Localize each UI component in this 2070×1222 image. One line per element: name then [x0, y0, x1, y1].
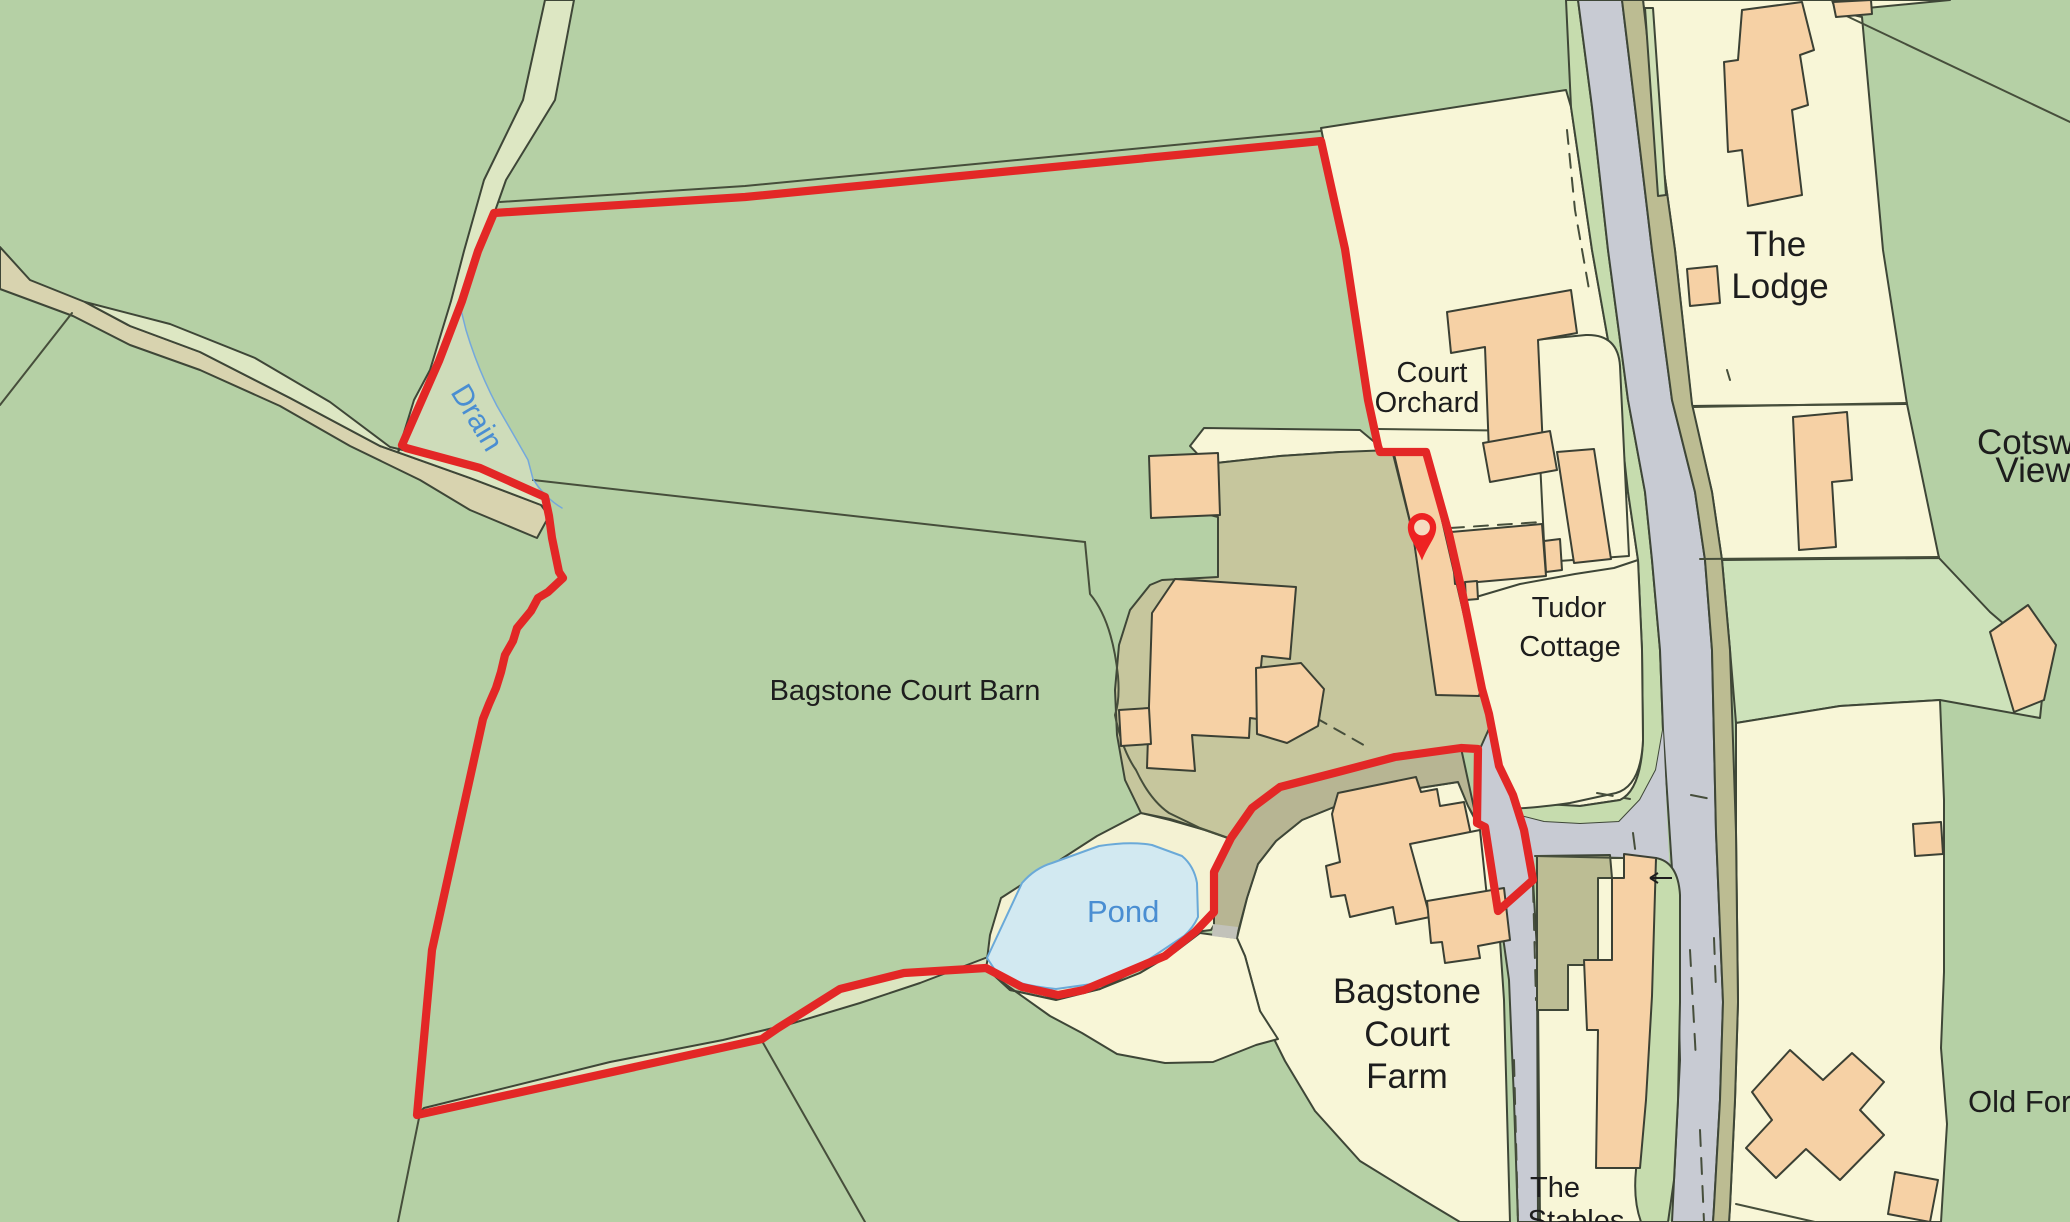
- svg-text:Farm: Farm: [1366, 1057, 1448, 1096]
- svg-text:Court: Court: [1397, 357, 1468, 389]
- svg-text:Cottage: Cottage: [1519, 631, 1621, 663]
- svg-text:Orchard: Orchard: [1375, 387, 1480, 419]
- svg-text:Tudor: Tudor: [1532, 592, 1607, 624]
- svg-text:Bagstone Court Barn: Bagstone Court Barn: [770, 675, 1041, 707]
- svg-text:View: View: [1995, 451, 2070, 490]
- svg-text:Pond: Pond: [1087, 894, 1159, 929]
- svg-text:The: The: [1746, 225, 1806, 264]
- svg-text:Court: Court: [1364, 1015, 1450, 1054]
- svg-text:The: The: [1530, 1172, 1580, 1204]
- svg-text:Bagstone: Bagstone: [1333, 972, 1481, 1011]
- svg-text:Old Forge: Old Forge: [1968, 1084, 2070, 1119]
- svg-text:Stables: Stables: [1528, 1205, 1625, 1222]
- svg-text:Lodge: Lodge: [1731, 267, 1828, 306]
